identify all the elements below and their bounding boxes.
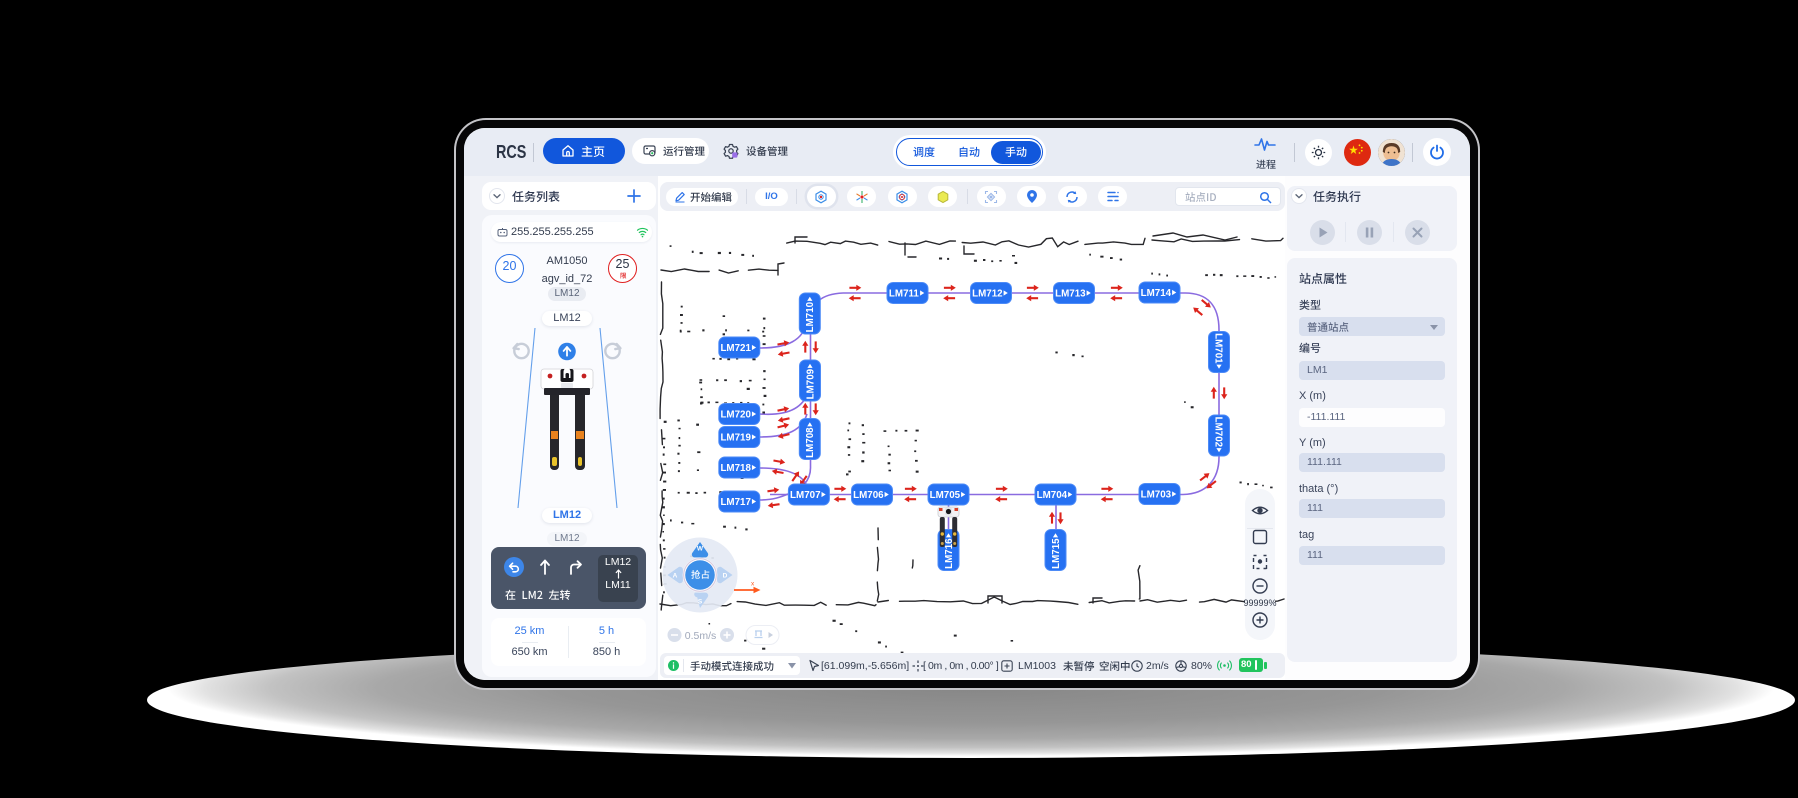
svg-text:LM707: LM707 <box>790 490 821 501</box>
svg-text:LM708: LM708 <box>805 427 816 458</box>
svg-text:LM706: LM706 <box>853 490 884 501</box>
svg-text:LM709: LM709 <box>805 368 816 399</box>
svg-text:LM713: LM713 <box>1055 288 1086 299</box>
svg-text:LM705: LM705 <box>930 490 961 501</box>
svg-text:LM717: LM717 <box>720 497 751 508</box>
svg-text:LM710: LM710 <box>805 301 816 332</box>
svg-text:S: S <box>698 599 703 606</box>
svg-text:LM701: LM701 <box>1213 333 1224 364</box>
svg-text:LM703: LM703 <box>1141 489 1172 500</box>
svg-text:LM718: LM718 <box>720 463 751 474</box>
svg-text:LM714: LM714 <box>1141 288 1172 299</box>
svg-text:A: A <box>673 573 678 580</box>
svg-text:LM711: LM711 <box>889 288 920 299</box>
svg-text:D: D <box>723 573 728 580</box>
svg-text:LM702: LM702 <box>1213 417 1224 448</box>
svg-text:LM704: LM704 <box>1037 490 1068 501</box>
svg-text:LM715: LM715 <box>1051 538 1062 569</box>
svg-text:W: W <box>697 546 704 553</box>
svg-text:LM721: LM721 <box>720 343 751 354</box>
svg-text:0.5m/s: 0.5m/s <box>685 630 717 642</box>
svg-text:99999%: 99999% <box>1243 598 1276 608</box>
svg-text:LM719: LM719 <box>720 432 751 443</box>
svg-text:LM720: LM720 <box>720 409 751 420</box>
svg-text:LM712: LM712 <box>972 288 1003 299</box>
